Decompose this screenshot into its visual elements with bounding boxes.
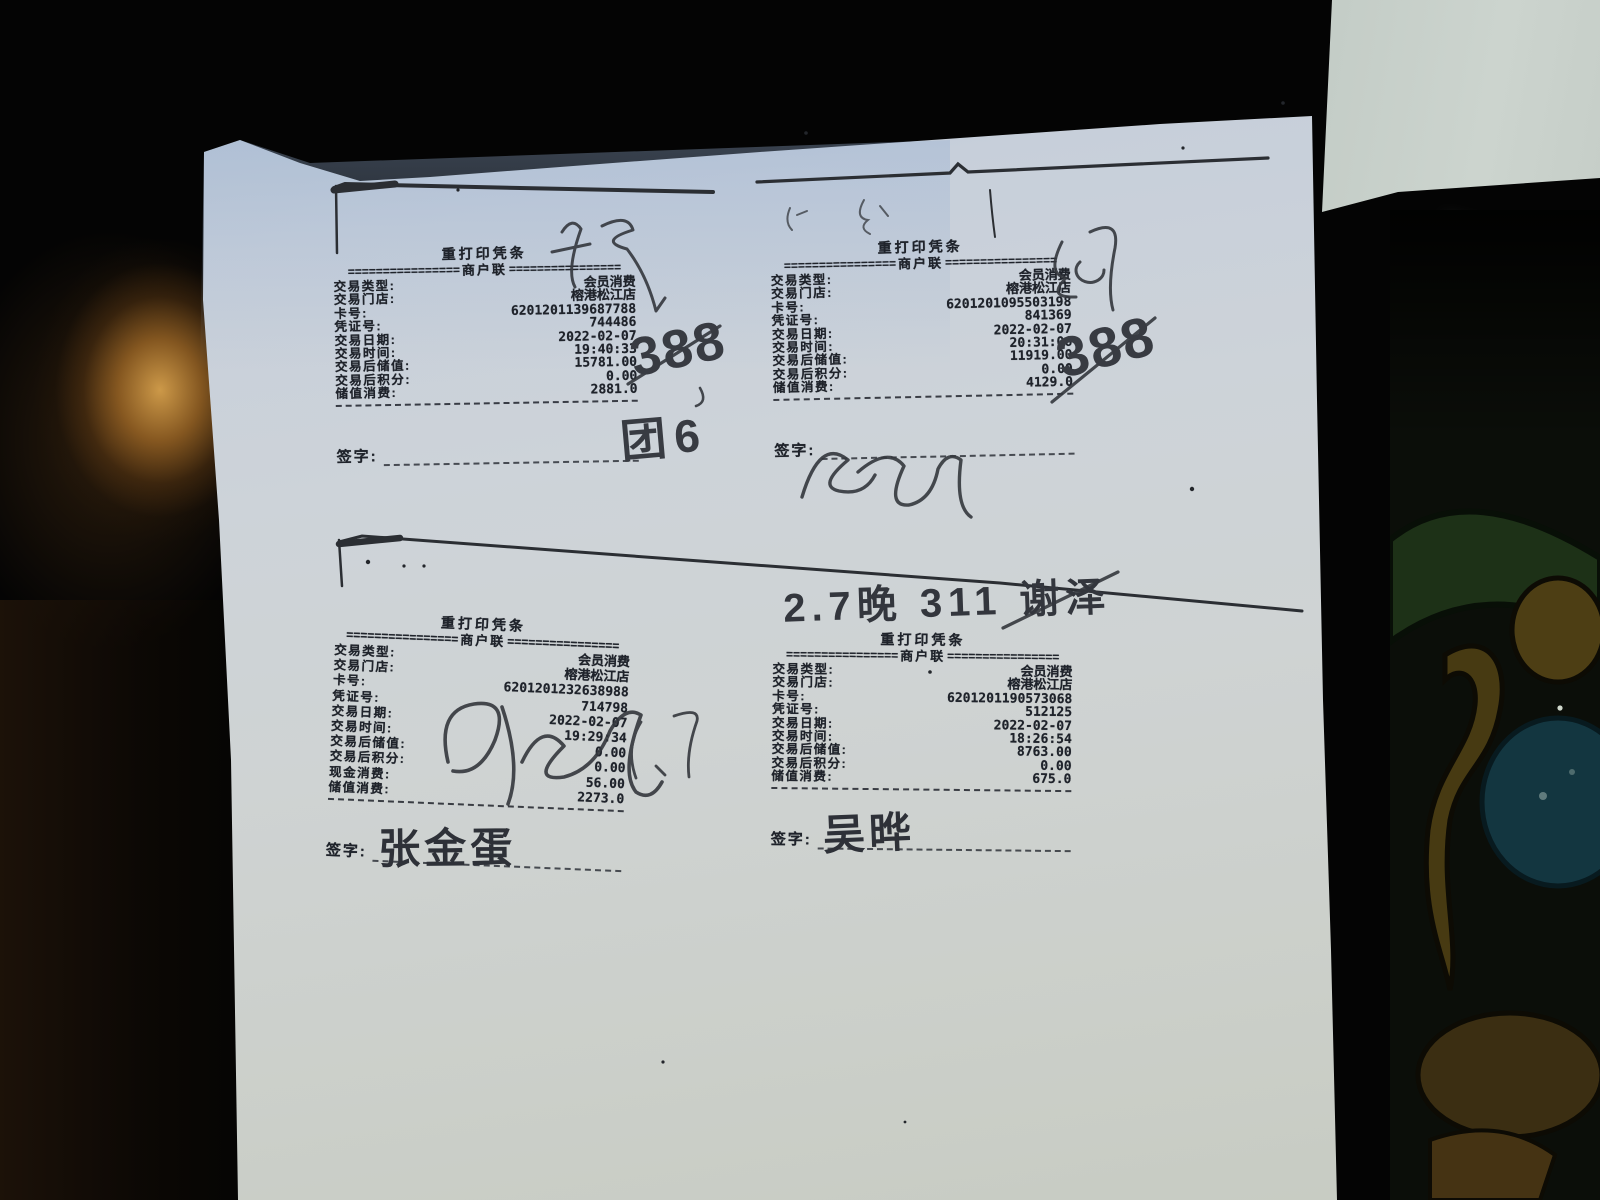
wood-surface-shadow [0, 600, 260, 1200]
receipt-field-label: 卡号: [333, 673, 367, 690]
receipt-rows: 交易类型:会员消费交易门店:榕港松江店卡号:6201201139687788凭证… [334, 276, 638, 402]
light-dot [1557, 705, 1562, 710]
receipt-bottom-left: 重打印凭条 ================ 商户联 =============… [325, 608, 631, 872]
dark-cartoon-object [1390, 210, 1600, 1200]
signature-row: 签字: 吴晔 [771, 825, 1071, 852]
signature-handwriting: 吴晔 [822, 798, 916, 863]
signature-label: 签字: [336, 445, 377, 467]
receipt-field-label: 储值消费: [335, 387, 397, 401]
copy-label: 商户联 [460, 263, 509, 277]
receipt-rows: 交易类型:会员消费交易门店:榕港松江店卡号:6201201095503198凭证… [771, 269, 1073, 396]
separator-fill: ================ [786, 648, 898, 662]
paper-scrap-top-right [1318, 0, 1600, 215]
receipt-end-line [771, 787, 1071, 792]
receipt-field-label: 储值消费: [773, 381, 835, 396]
cartoon-top-fade [1390, 210, 1600, 440]
separator-fill: ================ [509, 261, 621, 276]
copy-label: 商户联 [458, 633, 508, 648]
receipt-field-value: 675.0 [1032, 773, 1071, 787]
receipt-field-value: 0.00 [594, 760, 626, 777]
separator-fill: ================ [784, 257, 896, 272]
receipt-top-right: 重打印凭条 ================ 商户联 =============… [770, 234, 1075, 461]
receipt-bottom-right: 重打印凭条 ================ 商户联 =============… [771, 628, 1073, 852]
receipt-field-value: 2273.0 [577, 790, 625, 807]
receipt-field-value: 512125 [1025, 706, 1072, 720]
receipt-row: 储值消费:675.0 [771, 770, 1071, 787]
copy-label: 商户联 [898, 649, 947, 663]
receipt-field-label: 储值消费: [328, 780, 390, 798]
receipt-rows: 交易类型:会员消费交易门店:榕港松江店卡号:6201201232638988凭证… [328, 643, 630, 807]
receipt-field-label: 凭证号: [772, 703, 820, 717]
receipt-field-value: 19:29:34 [564, 729, 627, 747]
copy-label: 商户联 [896, 256, 945, 270]
receipt-field-value: 0.00 [595, 745, 627, 762]
light-dot [1539, 792, 1547, 800]
receipt-field-value: 2881.0 [590, 383, 637, 397]
separator-fill: ================ [348, 264, 460, 279]
receipt-field-value: 56.00 [585, 775, 625, 792]
separator-fill: ================ [945, 254, 1057, 269]
receipt-row: 储值消费:2881.0 [335, 383, 637, 402]
tan-shape-bottom [1418, 1013, 1600, 1137]
receipt-field-value: 6201201190573068 [947, 692, 1072, 707]
receipt-field-label: 储值消费: [771, 770, 833, 784]
receipt-field-value: 2022-02-07 [549, 713, 628, 731]
signature-label: 签字: [774, 439, 815, 461]
signature-handwriting: 张金蛋 [378, 814, 517, 876]
receipt-photo: 重打印凭条 ================ 商户联 =============… [0, 0, 1600, 1200]
light-dot [1569, 769, 1575, 775]
signature-label: 签字: [771, 828, 812, 849]
handwritten-table-note: 团6 [617, 398, 710, 471]
gold-blob-shape [1512, 578, 1600, 682]
separator-fill: ================ [947, 650, 1059, 664]
signature-label: 签字: [325, 839, 367, 862]
receipt-rows: 交易类型:会员消费交易门店:榕港松江店卡号:6201201190573068凭证… [771, 663, 1072, 787]
handwritten-evening-note: 2.7晚 311 谢泽 [782, 564, 1112, 633]
receipt-top-left: 重打印凭条 ================ 商户联 =============… [333, 241, 639, 467]
